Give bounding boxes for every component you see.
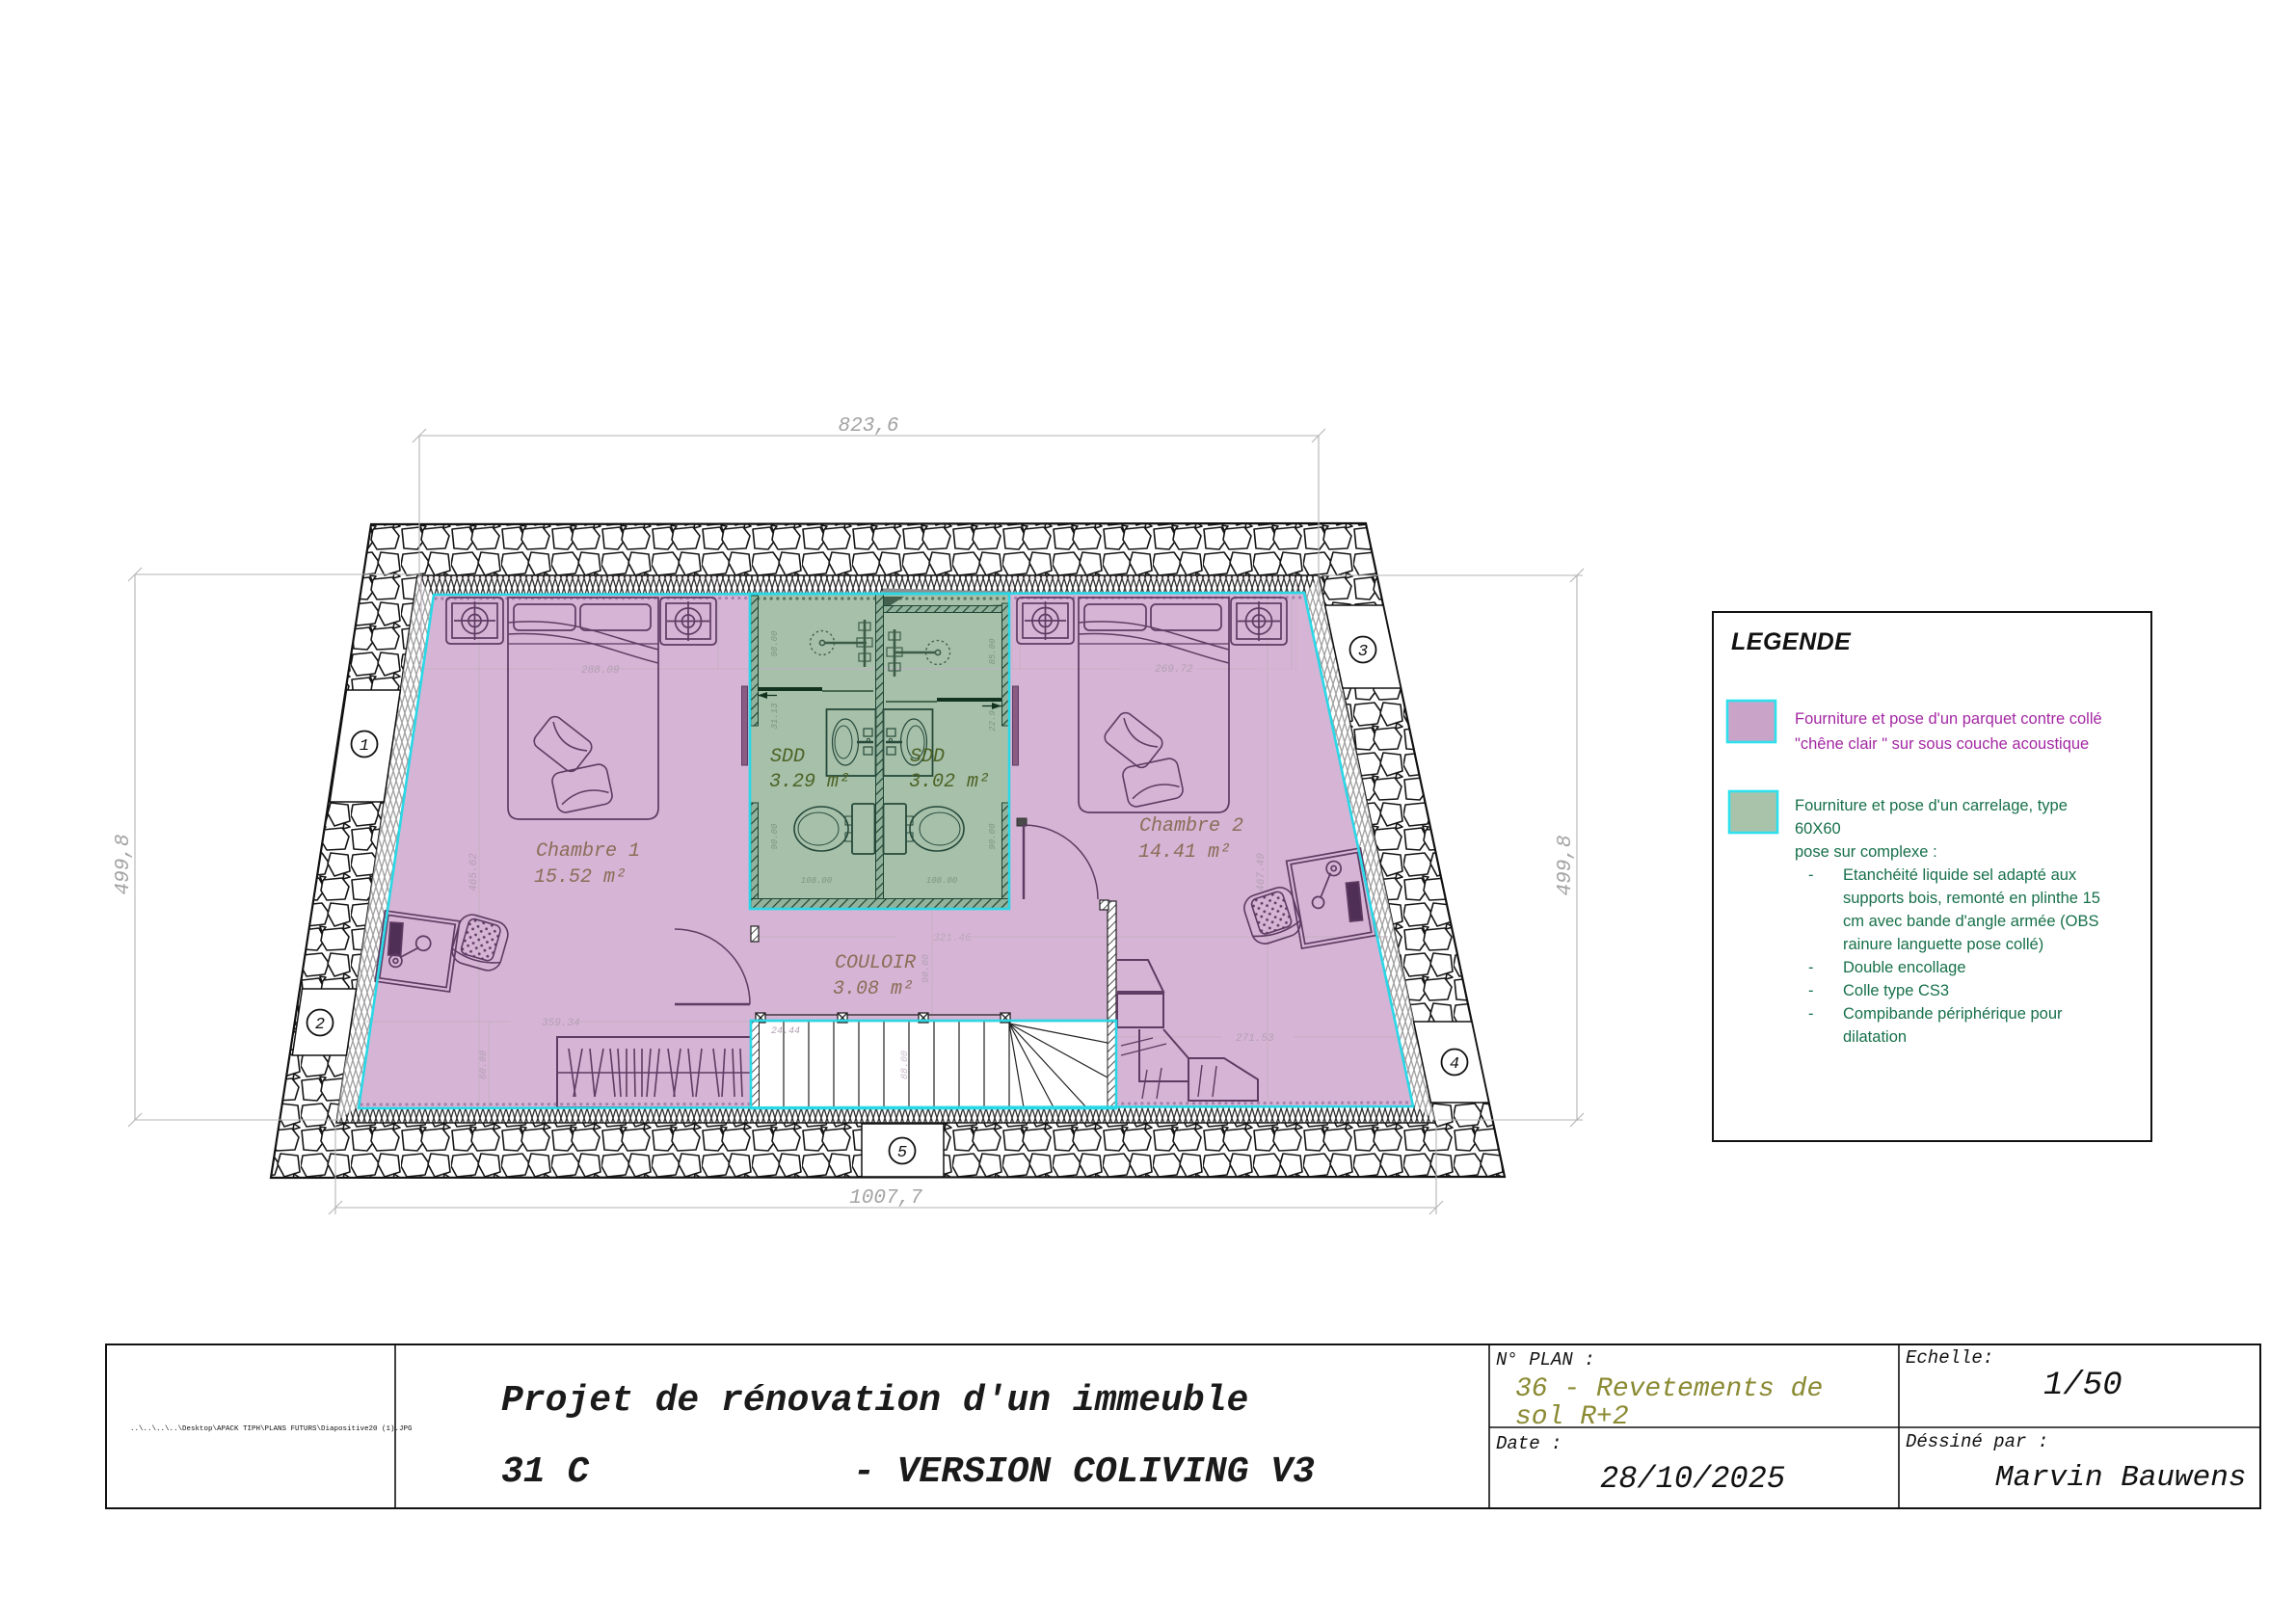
svg-text:1007,7: 1007,7 — [849, 1187, 922, 1210]
svg-text:-: - — [1808, 1005, 1814, 1023]
svg-text:14.41 m²: 14.41 m² — [1138, 841, 1231, 864]
svg-text:Projet de rénovation d'un imme: Projet de rénovation d'un immeuble — [501, 1380, 1248, 1422]
svg-text:Etanchéité liquide sel adapté: Etanchéité liquide sel adapté aux — [1843, 866, 2077, 884]
svg-text:dilatation: dilatation — [1843, 1028, 1907, 1046]
svg-text:1: 1 — [360, 737, 369, 756]
svg-text:28/10/2025: 28/10/2025 — [1600, 1461, 1785, 1497]
svg-text:31.13: 31.13 — [770, 703, 780, 730]
svg-text:-: - — [1808, 959, 1814, 976]
svg-text:Fourniture et pose d'un carrel: Fourniture et pose d'un carrelage, type — [1795, 797, 2068, 814]
svg-text:269.72: 269.72 — [1155, 664, 1193, 676]
svg-text:90.00: 90.00 — [988, 823, 998, 850]
svg-text:Chambre 1: Chambre 1 — [536, 840, 640, 863]
svg-text:823,6: 823,6 — [838, 415, 898, 438]
svg-text:108.00: 108.00 — [801, 876, 833, 886]
svg-text:- VERSION COLIVING V3: - VERSION COLIVING V3 — [853, 1451, 1315, 1493]
svg-text:3.29 m²: 3.29 m² — [769, 771, 850, 793]
svg-text:3: 3 — [1358, 643, 1368, 661]
svg-text:LEGENDE: LEGENDE — [1731, 628, 1852, 655]
svg-text:Colle type CS3: Colle type CS3 — [1843, 982, 1949, 999]
svg-text:rainure languette pose collé): rainure languette pose collé) — [1843, 936, 2043, 953]
svg-text:supports bois, remonté en plin: supports bois, remonté en plinthe 15 — [1843, 890, 2100, 907]
svg-text:sol R+2: sol R+2 — [1515, 1402, 1629, 1432]
svg-text:Chambre 2: Chambre 2 — [1139, 815, 1243, 838]
svg-text:288.09: 288.09 — [581, 665, 620, 677]
svg-text:Double encollage: Double encollage — [1843, 959, 1966, 976]
svg-text:85.00: 85.00 — [988, 638, 998, 665]
svg-text:88.00: 88.00 — [900, 1051, 911, 1079]
svg-text:Compibande périphérique pour: Compibande périphérique pour — [1843, 1005, 2063, 1023]
svg-text:1/50: 1/50 — [2043, 1368, 2122, 1404]
svg-text:3.08 m²: 3.08 m² — [833, 978, 914, 1000]
svg-text:2: 2 — [315, 1016, 325, 1034]
svg-text:60.00: 60.00 — [479, 1051, 490, 1079]
svg-text:..\..\..\..\Desktop\APACK TIPH: ..\..\..\..\Desktop\APACK TIPH\PLANS FUT… — [130, 1425, 413, 1433]
svg-text:15.52 m²: 15.52 m² — [534, 866, 627, 889]
svg-text:271.53: 271.53 — [1236, 1033, 1274, 1045]
svg-text:5: 5 — [897, 1144, 907, 1162]
svg-text:-: - — [1808, 982, 1814, 999]
svg-text:24.44: 24.44 — [771, 1026, 800, 1037]
svg-text:Marvin Bauwens: Marvin Bauwens — [1995, 1461, 2246, 1495]
svg-text:467.49: 467.49 — [1256, 853, 1268, 891]
svg-text:22.9: 22.9 — [988, 710, 998, 732]
svg-text:4: 4 — [1450, 1055, 1459, 1074]
svg-text:Date :: Date : — [1496, 1433, 1562, 1454]
svg-text:pose sur complexe :: pose sur complexe : — [1795, 843, 1937, 861]
svg-text:3.02 m²: 3.02 m² — [909, 771, 990, 793]
svg-text:499,8: 499,8 — [113, 834, 135, 894]
svg-text:321.46: 321.46 — [933, 933, 972, 945]
svg-text:465.62: 465.62 — [468, 853, 480, 891]
svg-text:499,8: 499,8 — [1555, 835, 1577, 895]
svg-text:90.00: 90.00 — [921, 954, 932, 983]
svg-text:-: - — [1808, 866, 1814, 884]
svg-text:N° PLAN :: N° PLAN : — [1496, 1349, 1595, 1370]
svg-text:Fourniture et pose d'un parque: Fourniture et pose d'un parquet contre c… — [1795, 710, 2102, 728]
svg-text:Echelle:: Echelle: — [1906, 1347, 1993, 1369]
svg-text:Déssiné par :: Déssiné par : — [1906, 1431, 2048, 1452]
svg-text:"chêne clair " sur sous couche: "chêne clair " sur sous couche acoustiqu… — [1795, 735, 2089, 753]
svg-text:SDD: SDD — [770, 746, 805, 768]
svg-text:90.00: 90.00 — [770, 823, 780, 850]
svg-text:36 - Revetements de: 36 - Revetements de — [1515, 1374, 1823, 1404]
svg-text:31 C: 31 C — [501, 1451, 589, 1493]
svg-text:COULOIR: COULOIR — [835, 952, 916, 974]
svg-text:98.00: 98.00 — [770, 630, 780, 657]
svg-text:60X60: 60X60 — [1795, 820, 1841, 838]
svg-text:359.34: 359.34 — [542, 1018, 580, 1029]
svg-text:cm avec bande d'angle armée (O: cm avec bande d'angle armée (OBS — [1843, 913, 2098, 930]
svg-text:SDD: SDD — [910, 746, 945, 768]
svg-text:108.00: 108.00 — [926, 876, 958, 886]
